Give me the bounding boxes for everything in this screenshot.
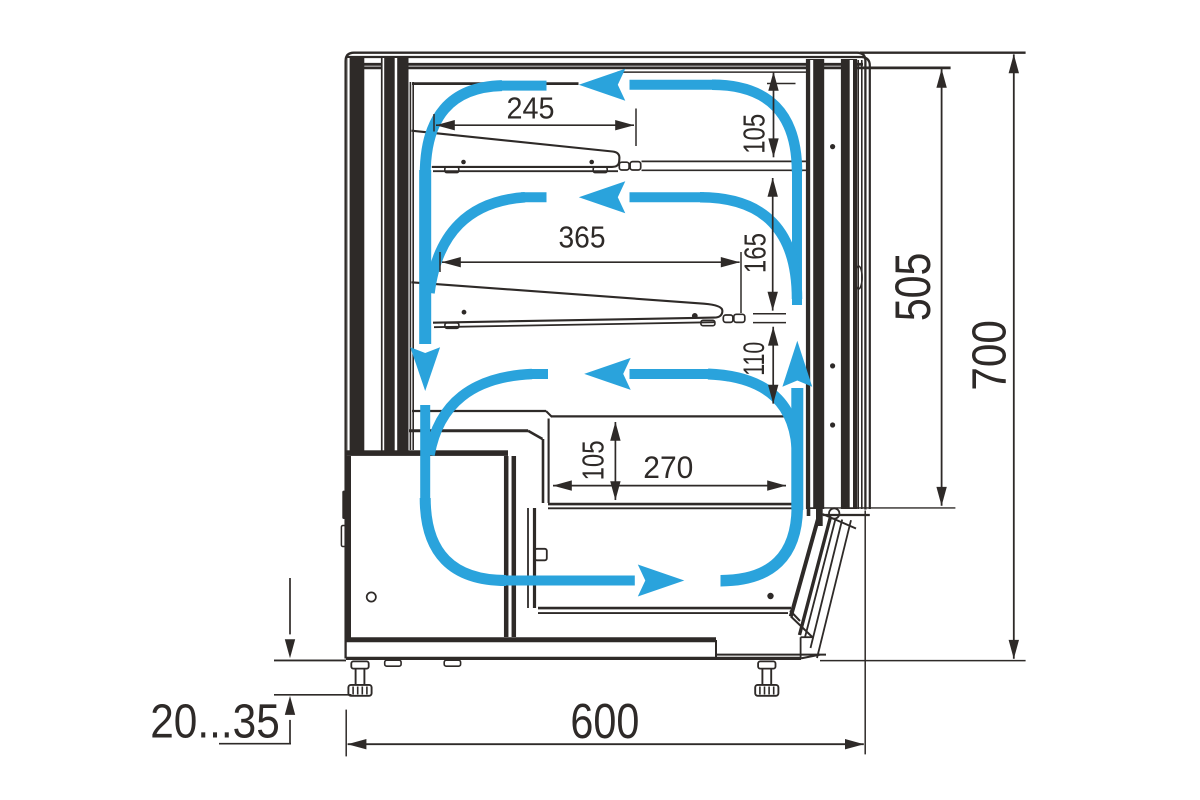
svg-text:270: 270	[643, 449, 693, 485]
svg-text:165: 165	[738, 233, 772, 273]
svg-text:105: 105	[577, 440, 611, 480]
svg-text:110: 110	[738, 342, 771, 376]
svg-text:365: 365	[559, 220, 606, 255]
svg-text:700: 700	[963, 320, 1016, 391]
svg-text:105: 105	[738, 114, 772, 154]
svg-text:20...35: 20...35	[150, 695, 280, 749]
svg-text:600: 600	[570, 694, 639, 749]
svg-text:245: 245	[507, 91, 555, 126]
svg-text:505: 505	[885, 253, 941, 322]
